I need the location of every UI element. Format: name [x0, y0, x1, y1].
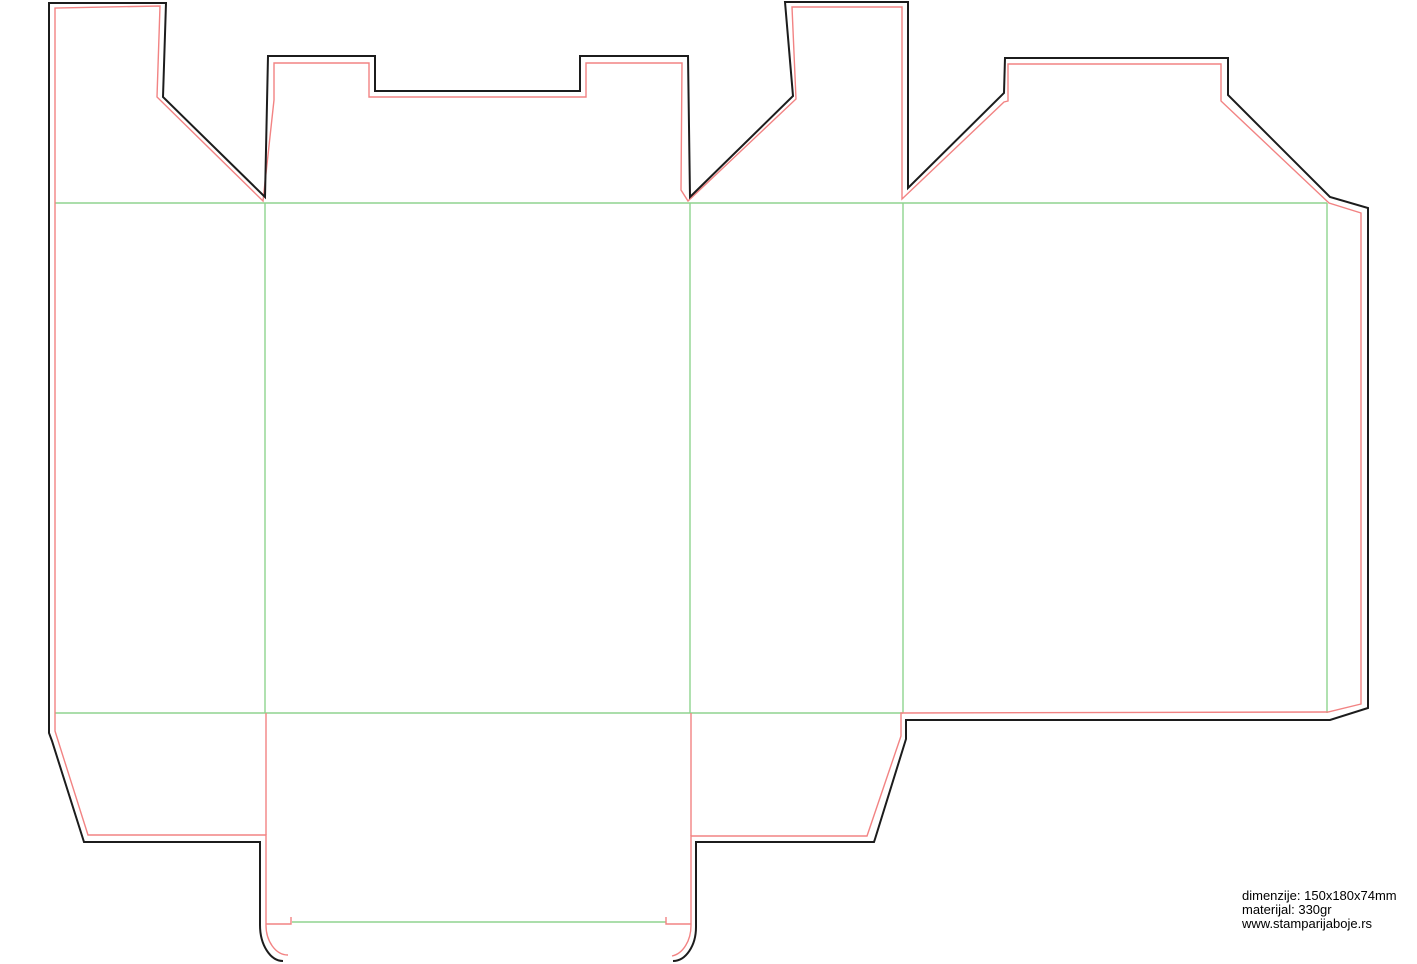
footer-material-label: materijal: 330gr	[1242, 903, 1397, 917]
footer-website-label: www.stamparijaboje.rs	[1242, 917, 1397, 931]
bleed-line-aux-segments	[266, 713, 691, 924]
footer-note: dimenzije: 150x180x74mm materijal: 330gr…	[1242, 889, 1397, 931]
cut-line-contour	[49, 2, 1368, 961]
dieline-drawing	[0, 0, 1417, 964]
bleed-line-contour	[55, 6, 1361, 956]
dieline-canvas: dimenzije: 150x180x74mm materijal: 330gr…	[0, 0, 1417, 964]
footer-dimensions-label: dimenzije: 150x180x74mm	[1242, 889, 1397, 903]
